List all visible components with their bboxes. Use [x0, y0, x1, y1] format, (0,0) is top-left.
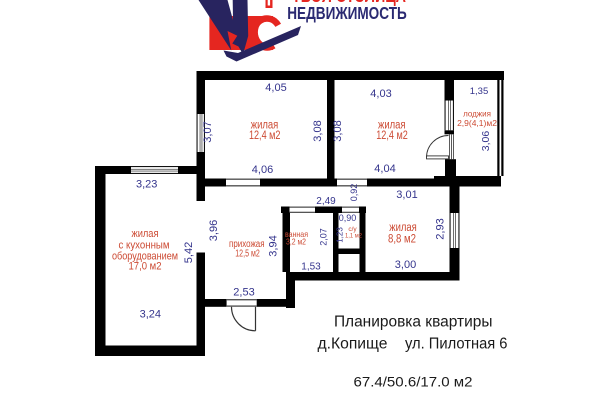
svg-text:2,93: 2,93 — [435, 218, 447, 239]
svg-text:3,00: 3,00 — [395, 259, 416, 271]
svg-text:12,4 м2: 12,4 м2 — [376, 130, 408, 142]
svg-text:3,01: 3,01 — [396, 189, 417, 201]
svg-text:3,06: 3,06 — [480, 131, 492, 152]
svg-text:1,1 м2: 1,1 м2 — [345, 233, 362, 240]
svg-text:3,07: 3,07 — [202, 121, 214, 142]
svg-text:3,23: 3,23 — [136, 179, 157, 191]
svg-text:12,4 м2: 12,4 м2 — [249, 130, 281, 142]
svg-text:12,5 м2: 12,5 м2 — [235, 248, 260, 259]
svg-text:0,90: 0,90 — [339, 213, 357, 223]
svg-text:17,0 м2: 17,0 м2 — [129, 261, 162, 273]
svg-text:2,9(4,1)м2: 2,9(4,1)м2 — [457, 118, 497, 128]
svg-text:8,8 м2: 8,8 м2 — [388, 234, 416, 246]
svg-text:3,08: 3,08 — [312, 120, 324, 141]
svg-text:5,42: 5,42 — [183, 242, 195, 263]
svg-text:жилая: жилая — [389, 222, 417, 234]
svg-text:2,49: 2,49 — [316, 196, 336, 207]
svg-text:3,94: 3,94 — [268, 235, 280, 256]
svg-text:д.Копище: д.Копище — [318, 336, 388, 353]
svg-text:4,03: 4,03 — [370, 88, 391, 100]
svg-text:4,05: 4,05 — [265, 82, 286, 94]
svg-text:1,53: 1,53 — [301, 262, 321, 273]
svg-text:НЕДВИЖИМОСТЬ: НЕДВИЖИМОСТЬ — [287, 3, 407, 23]
svg-text:жилая: жилая — [132, 228, 159, 240]
svg-text:67.4/50.6/17.0 м2: 67.4/50.6/17.0 м2 — [354, 374, 473, 390]
svg-text:3,24: 3,24 — [140, 309, 161, 321]
svg-text:1,35: 1,35 — [470, 86, 489, 97]
svg-text:2,07: 2,07 — [319, 228, 329, 246]
svg-text:Планировка квартиры: Планировка квартиры — [334, 314, 493, 331]
svg-text:0,92: 0,92 — [349, 184, 359, 202]
svg-text:3,08: 3,08 — [332, 120, 344, 141]
svg-text:4,06: 4,06 — [252, 164, 273, 176]
svg-text:3,96: 3,96 — [208, 220, 220, 241]
svg-text:1,23: 1,23 — [336, 227, 345, 243]
svg-text:2,53: 2,53 — [233, 287, 254, 299]
svg-text:4,04: 4,04 — [374, 163, 395, 175]
svg-text:ул. Пилотная 6: ул. Пилотная 6 — [405, 336, 508, 353]
svg-text:3,2 м2: 3,2 м2 — [286, 237, 306, 247]
